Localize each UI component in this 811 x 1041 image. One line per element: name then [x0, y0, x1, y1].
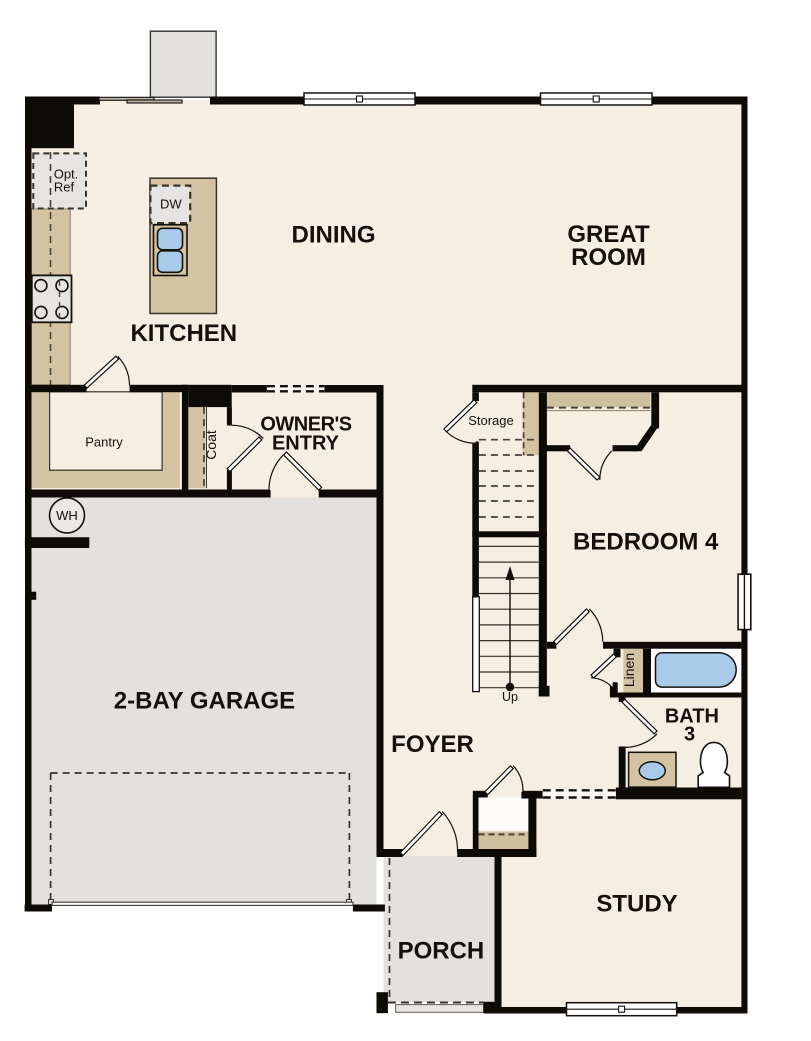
svg-text:DINING: DINING — [292, 222, 376, 249]
svg-text:WH: WH — [56, 508, 78, 523]
svg-text:Up: Up — [502, 690, 518, 704]
svg-text:Linen: Linen — [621, 653, 637, 687]
svg-text:Ref: Ref — [54, 180, 75, 195]
svg-text:Coat: Coat — [203, 430, 219, 460]
svg-text:Pantry: Pantry — [85, 435, 123, 450]
svg-text:ROOM: ROOM — [571, 244, 646, 271]
svg-text:Storage: Storage — [468, 413, 514, 428]
svg-text:2-BAY GARAGE: 2-BAY GARAGE — [114, 688, 295, 715]
svg-text:ENTRY: ENTRY — [272, 432, 340, 454]
svg-text:STUDY: STUDY — [596, 891, 677, 918]
svg-text:BEDROOM 4: BEDROOM 4 — [573, 529, 719, 556]
svg-text:DW: DW — [160, 197, 182, 212]
svg-text:FOYER: FOYER — [391, 731, 474, 758]
svg-text:KITCHEN: KITCHEN — [130, 320, 237, 347]
svg-text:PORCH: PORCH — [398, 938, 485, 965]
svg-text:3: 3 — [684, 724, 695, 746]
